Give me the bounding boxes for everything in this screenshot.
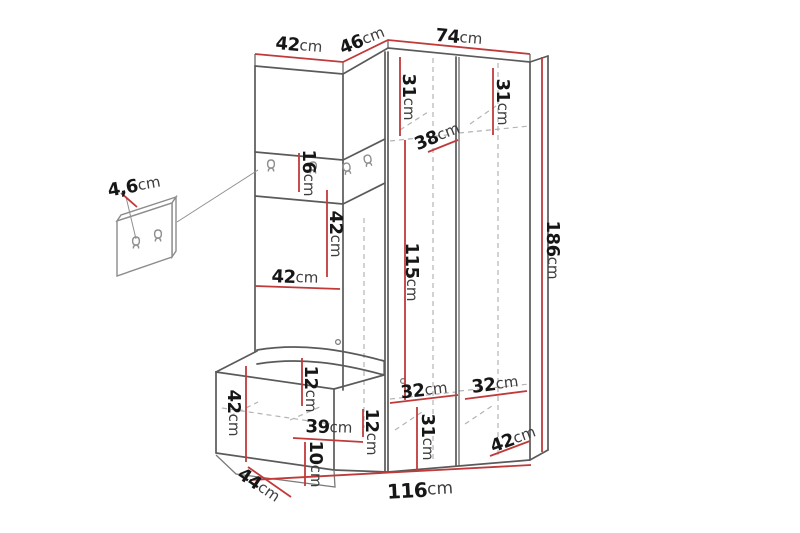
hidden-interior-edges <box>222 58 530 461</box>
dim-label-bench-height: 42cm <box>224 390 245 437</box>
dim-label-seat-thickness: 12cm <box>301 366 322 413</box>
dim-line-bench-inner-width <box>293 438 363 442</box>
coat-hook-icon <box>268 160 275 172</box>
dim-label-top-left-width: 42cm <box>275 32 324 57</box>
dim-label-wall-panel-thickness: 4,6cm <box>106 171 162 201</box>
furniture-dimension-diagram: 42cm 46cm 74cm 186cm 31cm 31cm 38cm 16cm… <box>0 0 800 533</box>
dim-label-bench-depth: 44cm <box>234 463 285 507</box>
dim-label-top-right-width: 74cm <box>435 24 484 49</box>
dim-line-niche-width <box>255 286 340 289</box>
dimension-labels: 42cm 46cm 74cm 186cm 31cm 31cm 38cm 16cm… <box>106 21 564 506</box>
dim-line-total-width <box>250 465 531 480</box>
panel-leader-line <box>177 170 258 222</box>
dim-label-total-height: 186cm <box>543 221 564 280</box>
dim-label-plinth-height: 10cm <box>306 441 327 488</box>
dim-label-hook-panel-height: 16cm <box>299 150 320 197</box>
dim-label-bench-inner-height: 12cm <box>362 409 383 456</box>
dim-label-shelf-left-height: 31cm <box>399 74 420 121</box>
dim-label-lower-inner-height: 31cm <box>418 414 439 461</box>
coat-hook-icon <box>363 154 372 167</box>
door-knob <box>336 340 341 345</box>
dim-label-lower-left-width: 32cm <box>400 377 449 403</box>
dim-label-lower-depth: 42cm <box>487 421 538 457</box>
dim-label-shelf-right-height: 31cm <box>493 79 514 126</box>
dim-label-niche-height: 42cm <box>326 211 347 258</box>
dim-label-total-width: 116cm <box>386 476 453 503</box>
dim-label-bench-inner-width: 39cm <box>305 416 353 439</box>
dim-label-niche-width: 42cm <box>271 266 319 289</box>
furniture-diagram-canvas: 42cm 46cm 74cm 186cm 31cm 31cm 38cm 16cm… <box>0 0 800 533</box>
dim-label-inner-height: 115cm <box>402 243 423 302</box>
